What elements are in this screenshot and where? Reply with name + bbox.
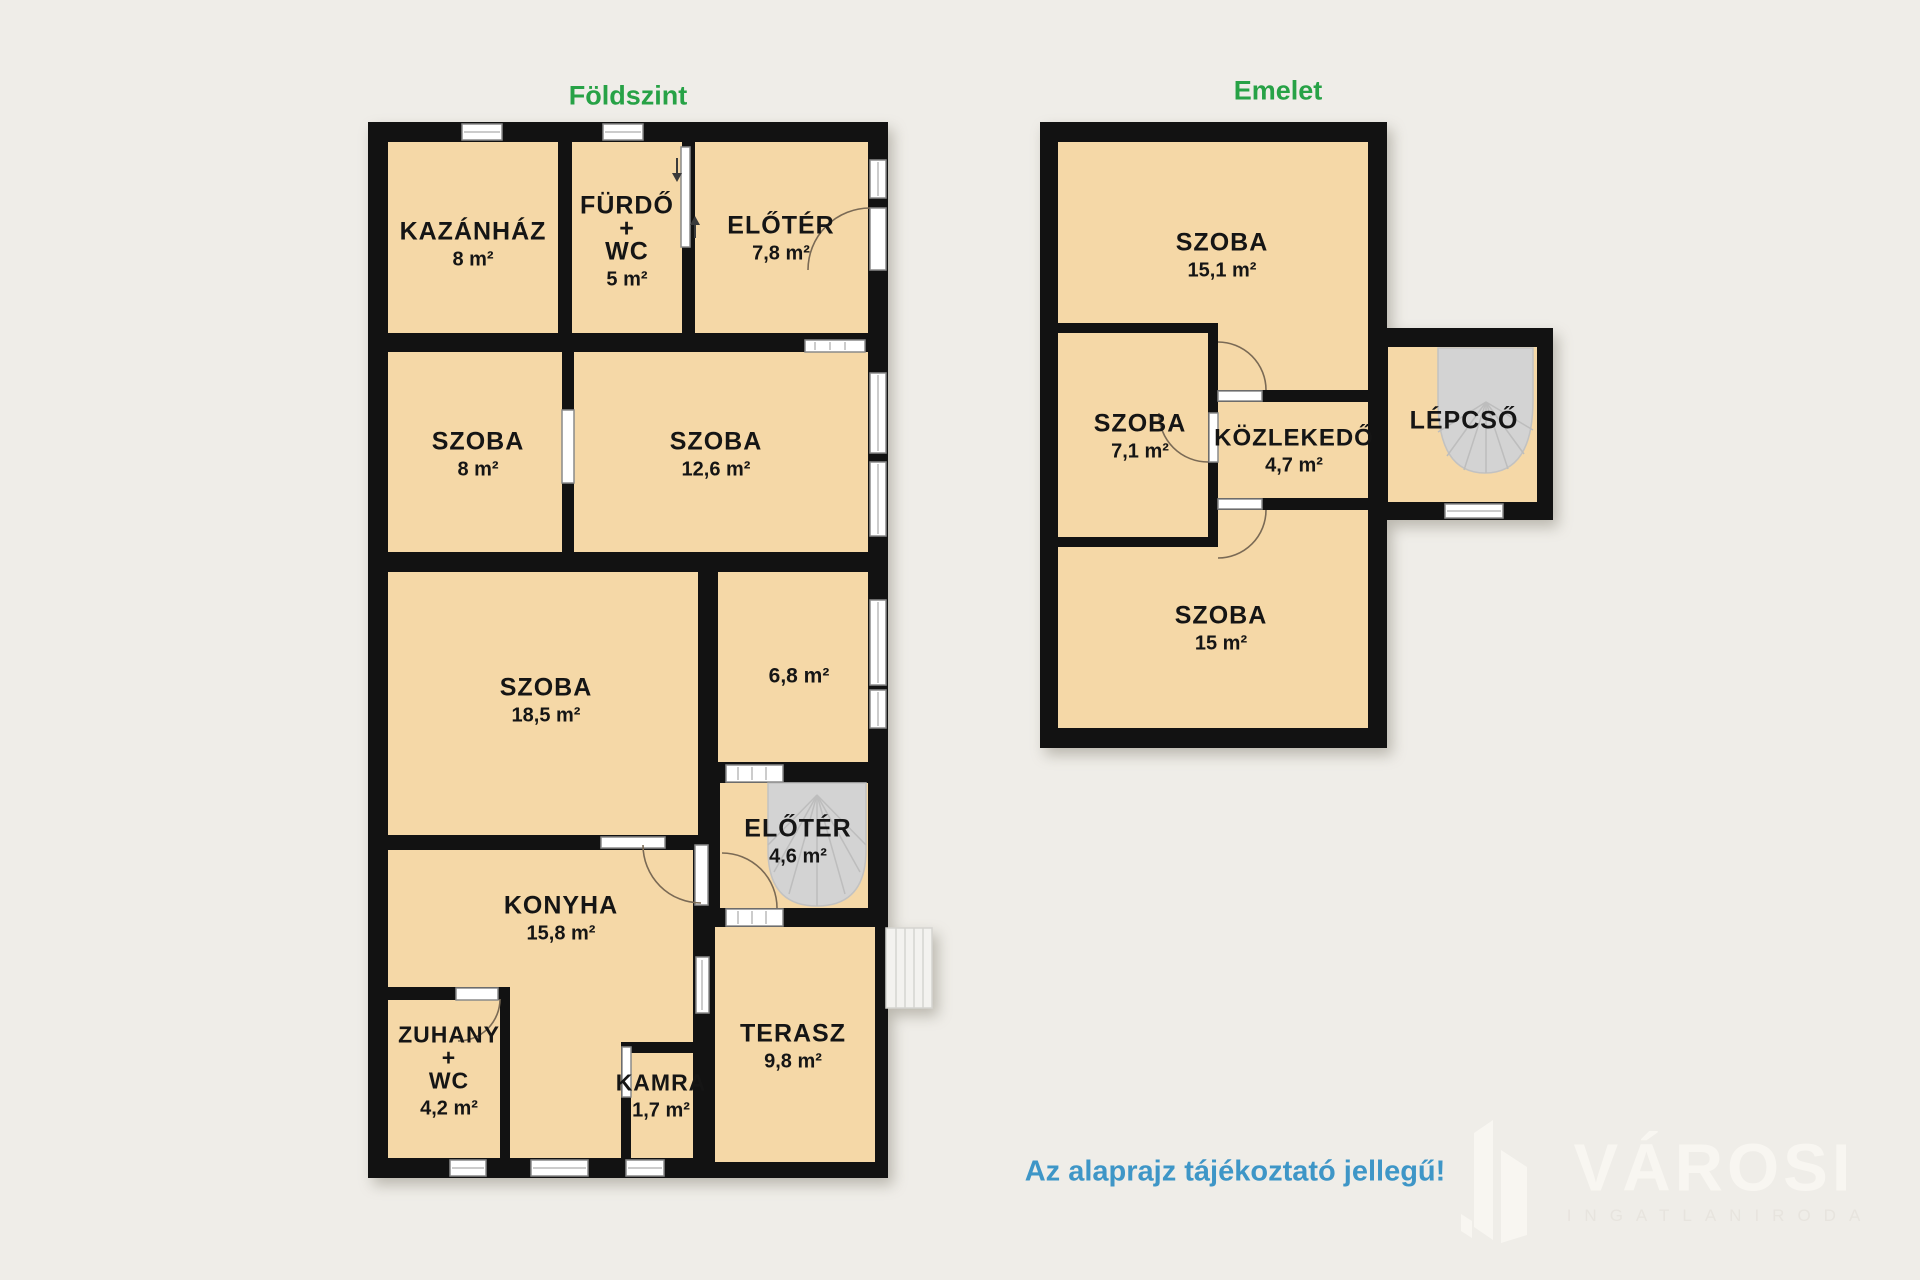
room-label-68: 6,8 m² [769,665,830,688]
room-label-konyha: KONYHA 15,8 m² [504,895,618,946]
entry-door [870,208,886,270]
door-opening [695,845,708,905]
sliding-door [562,410,574,483]
room-label-szoba-8: SZOBA 8 m² [432,431,525,482]
window [805,340,865,352]
room-label-kamra: KAMRA 1,7 m² [616,1072,707,1123]
room-label-szoba-71: SZOBA 7,1 m² [1094,413,1187,464]
room-label-szoba-126: SZOBA 12,6 m² [670,431,763,482]
room-label-szoba-185: SZOBA 18,5 m² [500,677,593,728]
room-label-eloter-46: ELŐTÉR 4,6 m² [744,818,851,869]
window [726,909,783,926]
room-label-kazanhaz: KAZÁNHÁZ 8 m² [400,221,547,272]
room-label-furdo-wc: FÜRDŐ + WC 5 m² [580,195,674,292]
floor-plan-graphics [0,0,1920,1280]
ground-floor-rooms [388,142,875,1162]
upper-floor-title: Emelet [1234,76,1323,107]
room-label-zuhany-wc: ZUHANY + WC 4,2 m² [398,1024,500,1121]
ground-floor-title: Földszint [569,81,687,112]
sliding-door [601,837,665,848]
logo-subtitle: INGATLANIRODA [1567,1206,1874,1226]
room-label-lepcso: LÉPCSŐ [1410,410,1519,433]
logo-building-icon [1461,1120,1527,1243]
room-label-kozlekedo: KÖZLEKEDŐ 4,7 m² [1214,427,1374,478]
door-opening [1218,499,1262,509]
room-label-eloter-top: ELŐTÉR 7,8 m² [727,215,834,266]
room-label-szoba-151: SZOBA 15,1 m² [1176,232,1269,283]
exterior-steps-icon [886,928,932,1008]
sliding-door [681,147,690,247]
disclaimer-text: Az alaprajz tájékoztató jellegű! [1025,1156,1446,1189]
floorplan-page: Földszint Emelet KAZÁNHÁZ 8 m² FÜRDŐ + W… [0,0,1920,1280]
window [456,988,498,1000]
room-label-terasz: TERASZ 9,8 m² [740,1023,846,1074]
room-label-szoba-15: SZOBA 15 m² [1175,605,1268,656]
door-opening [1218,391,1262,401]
window [726,765,783,782]
logo-wordmark: VÁROSI [1574,1130,1855,1207]
